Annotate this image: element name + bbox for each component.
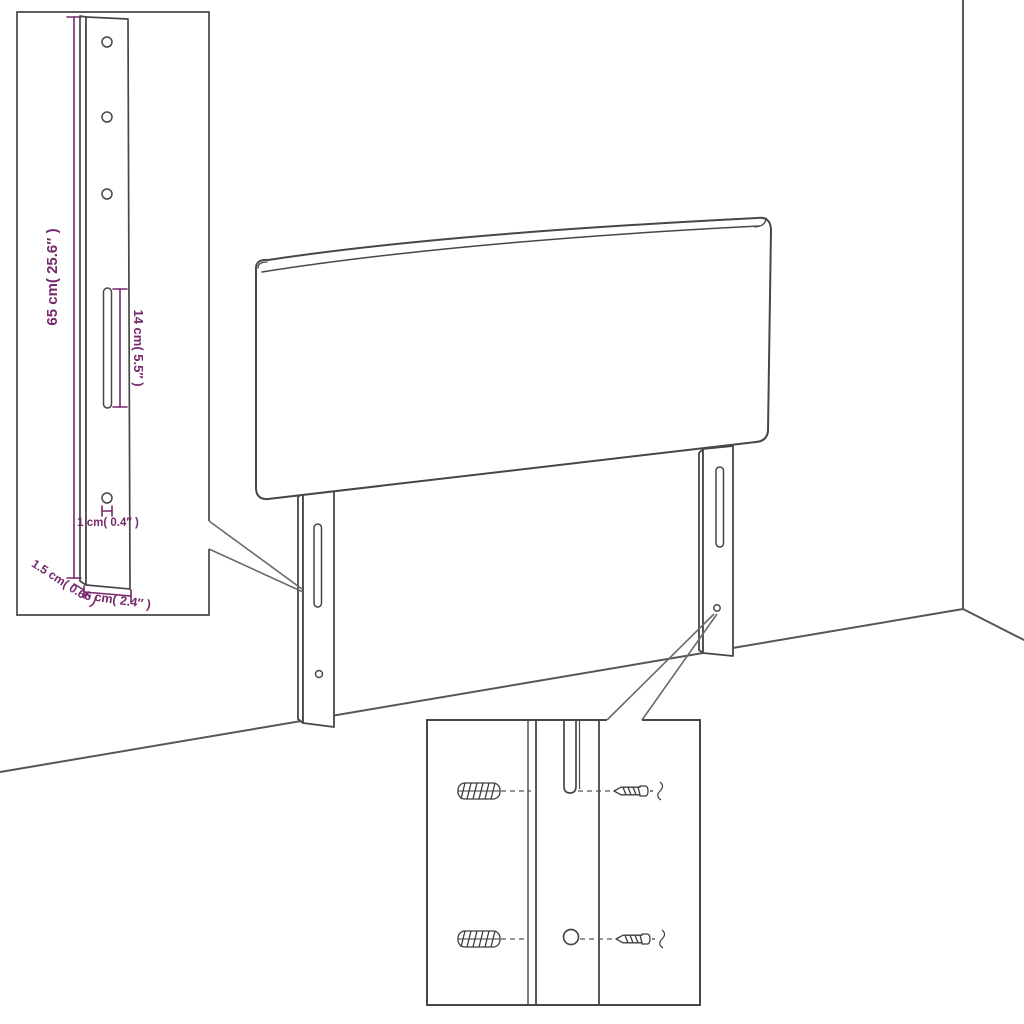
floor-line-right [963,609,1024,640]
hardware-leader-right [642,614,717,720]
bracket-hole-2 [102,112,112,122]
bracket-hole-1 [102,37,112,47]
bracket-height-label: 65 cm( 25.6″ ) [44,228,61,325]
bracket-side-view [80,16,130,589]
slot-length-label: 14 cm( 5.5″ ) [131,309,146,386]
bracket-slot [104,288,112,408]
right-leg-slot [716,467,724,547]
bracket-detail-inset: 65 cm( 25.6″ ) 14 cm( 5.5″ ) 1 cm( 0.4″ … [17,12,209,615]
headboard-panel [256,218,771,499]
assembly-diagram: 65 cm( 25.6″ ) 14 cm( 5.5″ ) 1 cm( 0.4″ … [0,0,1024,1024]
headboard-outline [256,218,771,499]
bracket-inset-leader-lines [209,521,303,592]
left-leg-hole [316,671,323,678]
left-leg-slot [314,524,322,607]
bracket-side-face [80,16,86,585]
bracket-bottom-hole [102,493,112,503]
hardware-detail-inset [427,720,700,1005]
hole-diameter-label: 1 cm( 0.4″ ) [77,517,139,529]
assembly-diagram-page: 65 cm( 25.6″ ) 14 cm( 5.5″ ) 1 cm( 0.4″ … [0,0,1024,1024]
bracket-hole-3 [102,189,112,199]
right-leg-hole [714,605,720,611]
left-leg [298,489,334,727]
